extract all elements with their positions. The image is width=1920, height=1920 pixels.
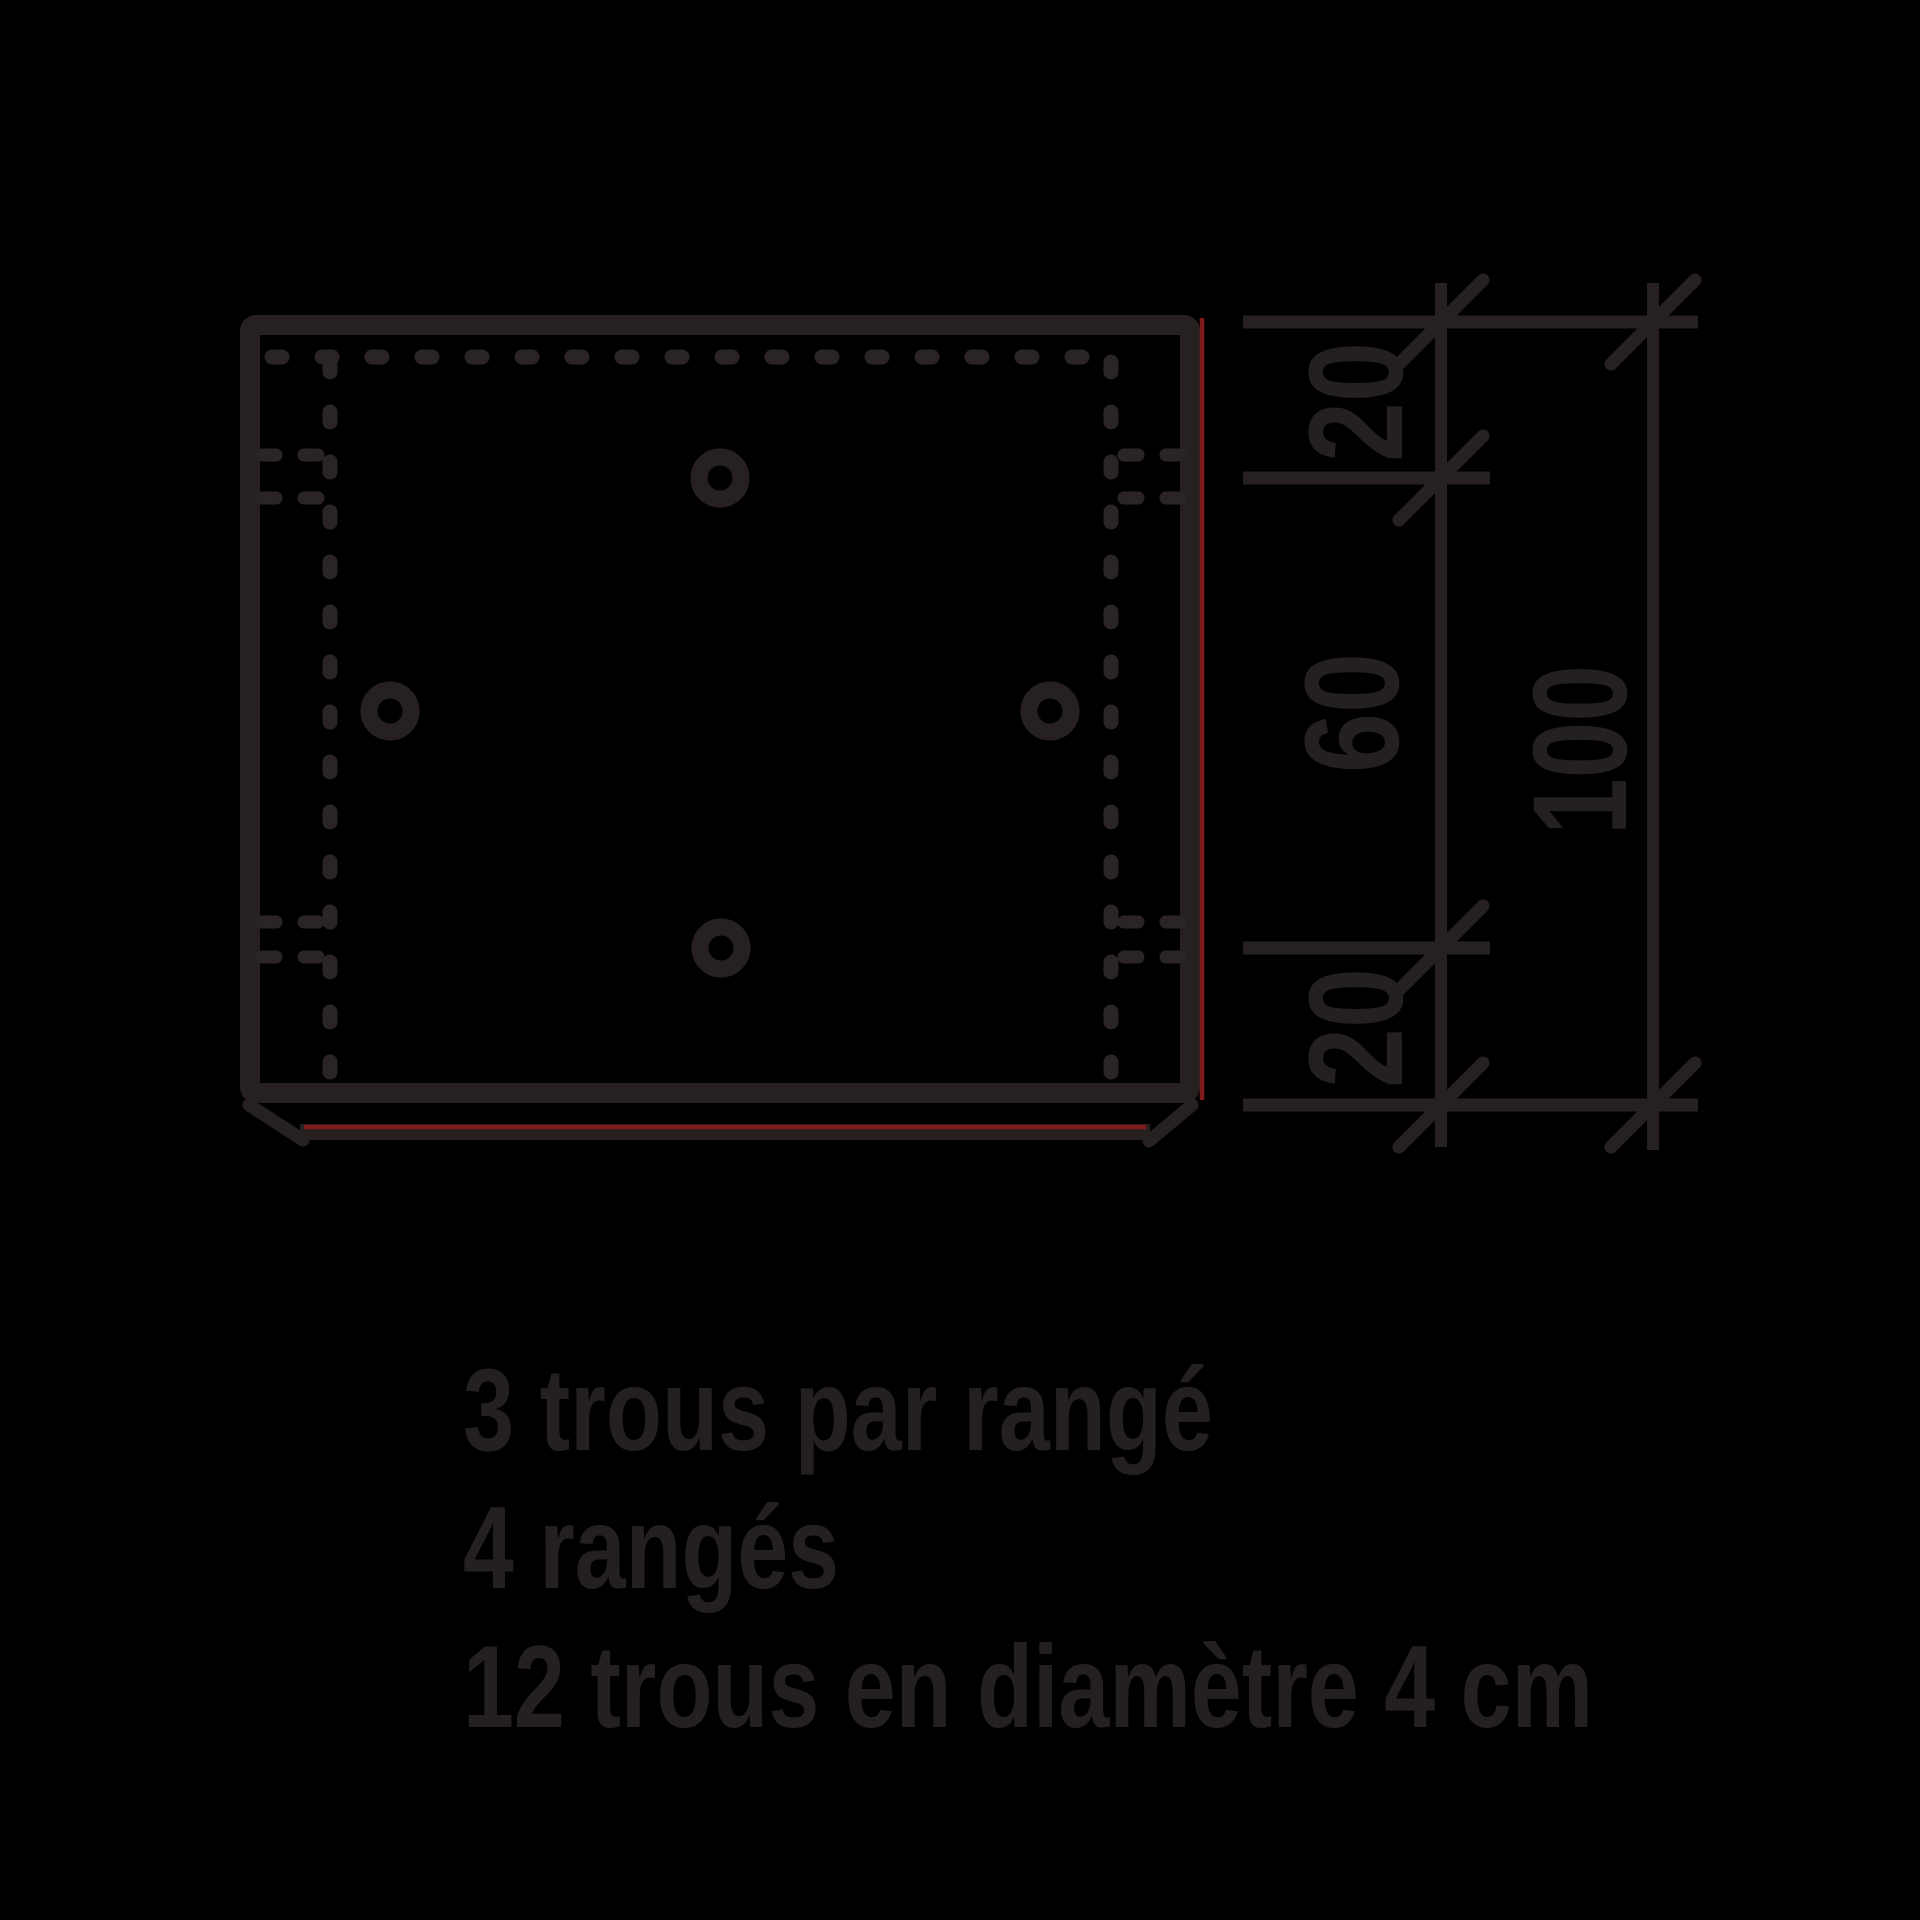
dimension-annotations: 20 60 20 100 — [1243, 280, 1698, 1150]
dim-label-20-bottom: 20 — [1282, 968, 1431, 1088]
notes-block: 3 trous par rangé 4 rangés 12 trous en d… — [463, 1344, 1593, 1752]
panel-outline — [250, 325, 1190, 1093]
panel-base-right-tick — [1149, 1105, 1192, 1141]
drain-hole-right — [1029, 690, 1071, 732]
note-line-total-diameter: 12 trous en diamètre 4 cm — [463, 1621, 1593, 1752]
panel-base-left-tick — [249, 1105, 303, 1140]
drain-hole-top — [699, 457, 741, 499]
note-line-rows: 4 rangés — [463, 1482, 839, 1613]
drain-hole-bottom — [700, 927, 742, 969]
technical-drawing-page: 20 60 20 100 3 trous par rangé 4 rangés … — [0, 0, 1920, 1920]
drain-hole-left — [369, 690, 411, 732]
dim-label-20-top: 20 — [1282, 342, 1431, 462]
note-line-holes-per-row: 3 trous par rangé — [463, 1344, 1213, 1475]
dimension-drawing: 20 60 20 100 3 trous par rangé 4 rangés … — [0, 0, 1920, 1920]
panel-front-view — [249, 318, 1202, 1141]
dim-label-60-middle: 60 — [1278, 653, 1427, 773]
dim-label-100-overall: 100 — [1506, 665, 1655, 835]
